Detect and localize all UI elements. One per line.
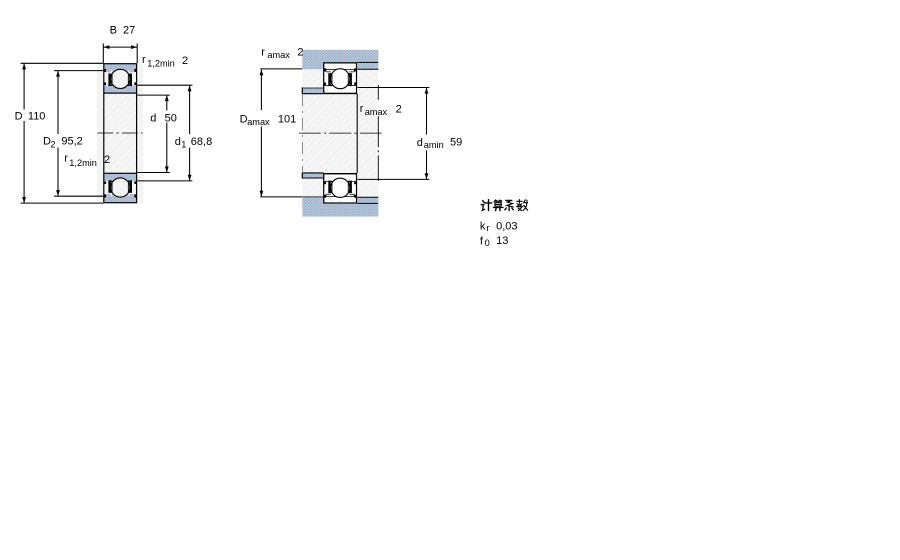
svg-text:r: r xyxy=(64,153,68,165)
svg-text:r: r xyxy=(142,54,146,66)
svg-text:d: d xyxy=(417,137,423,149)
svg-text:1,2min: 1,2min xyxy=(69,158,97,168)
svg-text:0: 0 xyxy=(485,238,490,248)
svg-text:27: 27 xyxy=(123,25,135,37)
svg-text:2: 2 xyxy=(297,47,303,59)
svg-text:r: r xyxy=(261,47,265,59)
svg-text:110: 110 xyxy=(28,110,46,122)
svg-text:2: 2 xyxy=(396,103,402,115)
svg-text:2: 2 xyxy=(182,55,188,67)
svg-text:101: 101 xyxy=(278,113,296,125)
svg-text:0,03: 0,03 xyxy=(496,220,517,232)
svg-text:2: 2 xyxy=(104,154,110,166)
svg-text:D: D xyxy=(15,110,23,122)
svg-text:d: d xyxy=(175,136,181,148)
svg-text:r: r xyxy=(486,223,489,233)
svg-text:amax: amax xyxy=(365,107,388,117)
svg-text:50: 50 xyxy=(165,113,177,125)
svg-text:r: r xyxy=(360,103,364,115)
svg-text:d: d xyxy=(150,113,156,125)
svg-text:amax: amax xyxy=(267,50,290,60)
svg-text:B: B xyxy=(110,25,117,37)
svg-text:59: 59 xyxy=(450,136,462,148)
svg-text:2: 2 xyxy=(50,140,55,150)
svg-text:k: k xyxy=(480,221,486,233)
svg-text:amax: amax xyxy=(247,117,270,127)
svg-text:13: 13 xyxy=(496,235,508,247)
svg-text:1: 1 xyxy=(181,140,186,150)
svg-text:amin: amin xyxy=(424,140,444,150)
svg-text:95,2: 95,2 xyxy=(61,136,82,148)
svg-text:1,2min: 1,2min xyxy=(147,58,175,68)
svg-text:68,8: 68,8 xyxy=(191,136,212,148)
